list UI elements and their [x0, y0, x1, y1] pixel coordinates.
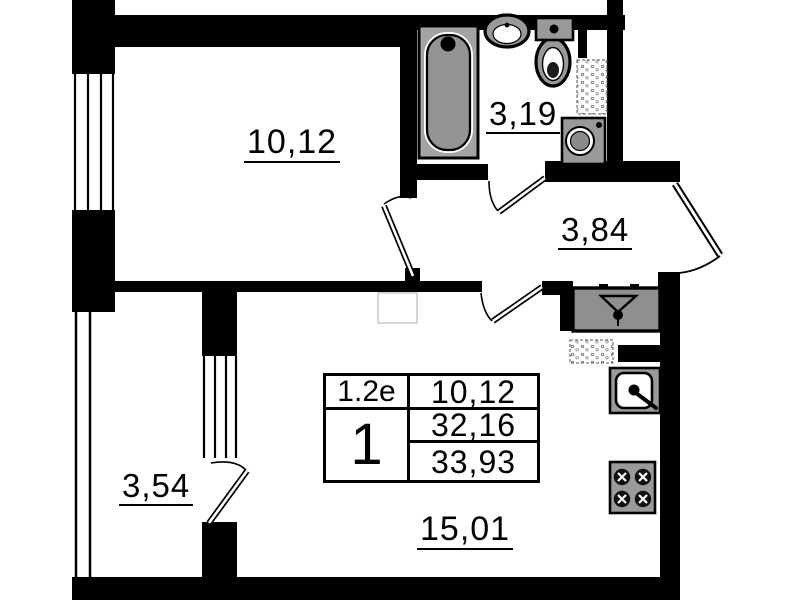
wall-segment — [618, 345, 660, 362]
wall-segment — [72, 577, 680, 600]
kitchen-vent-hatch — [570, 340, 613, 363]
apartment-info-table: 1.2e 1 10,12 32,16 33,93 — [323, 373, 540, 483]
total-area-cell: 33,93 — [410, 443, 537, 480]
room-label-bathroom: 3,19 — [486, 97, 560, 134]
washbasin — [485, 15, 529, 47]
wall-segment — [113, 15, 410, 47]
wall-segment — [417, 164, 488, 180]
room-label-bedroom: 10,12 — [244, 125, 340, 163]
entrance-door — [675, 184, 720, 273]
toilet — [536, 18, 573, 86]
room-label-balcony: 3,54 — [119, 469, 193, 506]
bathroom-vent-hatch — [577, 60, 607, 114]
bathtub-drain — [441, 37, 456, 52]
wall-segment — [578, 15, 587, 58]
vent-box — [573, 284, 660, 331]
bedroom-door — [384, 196, 413, 276]
stove — [610, 462, 655, 513]
balcony-partition-window — [204, 356, 236, 458]
floor-plan-drawing — [0, 0, 799, 600]
bathtub — [419, 26, 478, 158]
wall-segment — [202, 522, 237, 577]
washing-machine — [562, 118, 605, 164]
wall-segment — [658, 272, 680, 287]
balcony-door — [209, 462, 247, 523]
floor-plan: 10,12 3,19 3,84 3,54 15,01 1.2e 1 10,12 … — [0, 0, 799, 600]
wall-segment — [660, 287, 680, 600]
living-area-cell: 10,12 — [410, 376, 537, 410]
bathroom-door — [489, 178, 545, 212]
bedroom-window — [72, 74, 115, 210]
wall-segment — [72, 0, 115, 74]
wall-segment — [400, 30, 417, 198]
wall-segment — [113, 281, 482, 292]
room-count-cell: 1 — [326, 410, 410, 480]
balcony-glazing — [76, 310, 90, 578]
ghost-outline — [378, 293, 417, 323]
wall-segment — [607, 0, 623, 162]
plan-code-cell: 1.2e — [326, 376, 410, 410]
kitchen-sink — [610, 368, 660, 413]
hallway-living-door — [481, 287, 542, 321]
room-label-living-kitchen: 15,01 — [417, 512, 513, 550]
apartment-area-cell: 32,16 — [410, 410, 537, 443]
wall-segment — [72, 210, 115, 312]
wall-segment — [202, 281, 237, 356]
room-label-hallway: 3,84 — [558, 213, 632, 250]
wall-segment — [560, 281, 573, 331]
